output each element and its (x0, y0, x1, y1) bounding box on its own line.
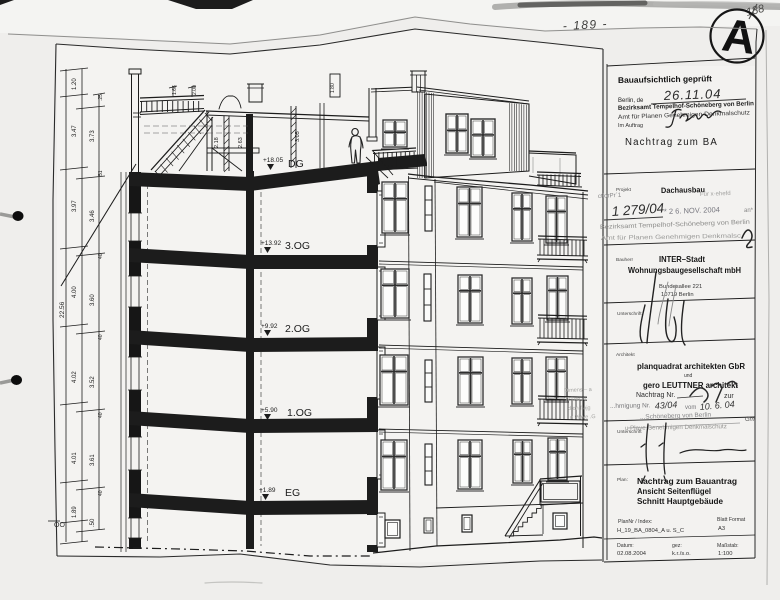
svg-text:Architekt: Architekt (616, 352, 635, 358)
svg-text:2.18: 2.18 (214, 137, 220, 148)
svg-text:3.61: 3.61 (90, 454, 96, 466)
svg-text:Im Auftrag: Im Auftrag (618, 123, 643, 129)
svg-text:40: 40 (98, 412, 104, 418)
svg-text:u Piave .G: u Piave .G (570, 414, 596, 421)
svg-text:4.01: 4.01 (72, 452, 78, 464)
svg-text:Dachausbau: Dachausbau (661, 185, 705, 195)
svg-text:d on f ajg: d on f ajg (568, 405, 591, 412)
svg-text:4.00: 4.00 (72, 286, 78, 298)
svg-text:OO: OO (54, 522, 65, 529)
svg-text:INTER–Stadt: INTER–Stadt (659, 254, 705, 264)
svg-text:EG: EG (285, 487, 300, 499)
svg-text:Für x·ehefd: Für x·ehefd (700, 191, 731, 198)
svg-text:40: 40 (98, 253, 104, 259)
svg-text:.25: .25 (98, 94, 104, 101)
svg-text:k.r./s.o.: k.r./s.o. (672, 551, 691, 557)
svg-text:Gm: Gm (745, 417, 755, 423)
svg-text:Nachtrag Nr.: Nachtrag Nr. (636, 392, 675, 399)
svg-text:Schnitt Hauptgebäude: Schnitt Hauptgebäude (637, 497, 723, 506)
svg-text:Bauaufsichtlich geprüft: Bauaufsichtlich geprüft (618, 74, 712, 85)
svg-text:Bundesallee 221: Bundesallee 221 (659, 284, 702, 290)
svg-text:3.05: 3.05 (295, 131, 301, 142)
svg-text:Unterschrift: Unterschrift (617, 429, 642, 435)
svg-text:Wohnungsbaugesellschaft mbH: Wohnungsbaugesellschaft mbH (628, 266, 741, 275)
svg-text:Blatt Format: Blatt Format (717, 517, 746, 523)
svg-text:Nachtrag zum BA: Nachtrag zum BA (625, 137, 718, 148)
svg-text:2.OG: 2.OG (285, 323, 310, 335)
svg-text:+5.90: +5.90 (261, 407, 278, 414)
svg-text:Unterschrift: Unterschrift (617, 311, 642, 317)
svg-text:2.63: 2.63 (238, 137, 244, 148)
svg-text:Ansicht Seitenflügel: Ansicht Seitenflügel (637, 487, 711, 496)
svg-text:an*: an* (744, 208, 754, 214)
svg-text:10719 Berlin: 10719 Berlin (661, 292, 694, 298)
svg-text:und: und (684, 373, 693, 379)
svg-text:Maßstab:: Maßstab: (717, 543, 739, 549)
svg-text:1.66: 1.66 (172, 85, 178, 95)
svg-text:2.00: 2.00 (192, 85, 198, 95)
svg-text:Plan:: Plan: (617, 477, 628, 483)
svg-text:Nachtrag zum Bauantrag: Nachtrag zum Bauantrag (637, 477, 737, 486)
svg-text:R i ne m: R i ne m (566, 396, 587, 403)
svg-text:ctiorPr´1: ctiorPr´1 (598, 192, 622, 200)
svg-text:3.97: 3.97 (72, 200, 78, 212)
svg-text:1.80: 1.80 (330, 83, 336, 93)
svg-text:1.OG: 1.OG (287, 407, 312, 419)
svg-text:Datum:: Datum: (617, 543, 634, 549)
svg-text:+9.92: +9.92 (261, 323, 278, 330)
svg-text:A: A (719, 8, 758, 64)
svg-text:3.73: 3.73 (90, 130, 96, 142)
svg-text:...hmigung Nr.: ...hmigung Nr. (610, 402, 651, 410)
svg-text:40: 40 (98, 490, 104, 496)
svg-text:PlanNr / Index:: PlanNr / Index: (618, 519, 652, 525)
svg-text:1:100: 1:100 (718, 551, 733, 557)
svg-text:1.20: 1.20 (72, 78, 78, 90)
svg-text:40: 40 (98, 334, 104, 340)
svg-text:H_19_BA_0804_A u. S_C: H_19_BA_0804_A u. S_C (617, 528, 684, 534)
svg-text:3.47: 3.47 (72, 125, 78, 137)
svg-text:1.89: 1.89 (72, 506, 78, 518)
svg-text:planquadrat architekten GbR: planquadrat architekten GbR (637, 362, 745, 371)
svg-text:4.02: 4.02 (72, 371, 78, 383)
svg-text:+18.05: +18.05 (263, 157, 283, 164)
svg-text:3.OG: 3.OG (285, 240, 310, 252)
svg-text:51: 51 (98, 170, 104, 176)
svg-text:Dimens – a: Dimens – a (564, 387, 593, 394)
svg-text:3.52: 3.52 (90, 376, 96, 388)
svg-text:02.08.2004: 02.08.2004 (617, 551, 647, 557)
svg-text:.50: .50 (90, 518, 96, 527)
svg-text:+1.89: +1.89 (259, 487, 276, 494)
svg-text:22.56: 22.56 (59, 301, 66, 318)
svg-text:+13.92: +13.92 (261, 240, 281, 247)
svg-text:gero LEUTTNER architekt: gero LEUTTNER architekt (643, 381, 738, 390)
svg-text:Bauherr: Bauherr (616, 257, 633, 263)
svg-text:A3: A3 (718, 526, 725, 532)
svg-text:3.60: 3.60 (90, 294, 96, 306)
svg-text:43/04: 43/04 (654, 399, 677, 411)
svg-text:Berlin, de: Berlin, de (618, 98, 644, 104)
svg-text:vom: vom (685, 405, 696, 411)
svg-text:3.46: 3.46 (90, 210, 96, 222)
svg-text:gez:: gez: (672, 543, 682, 549)
